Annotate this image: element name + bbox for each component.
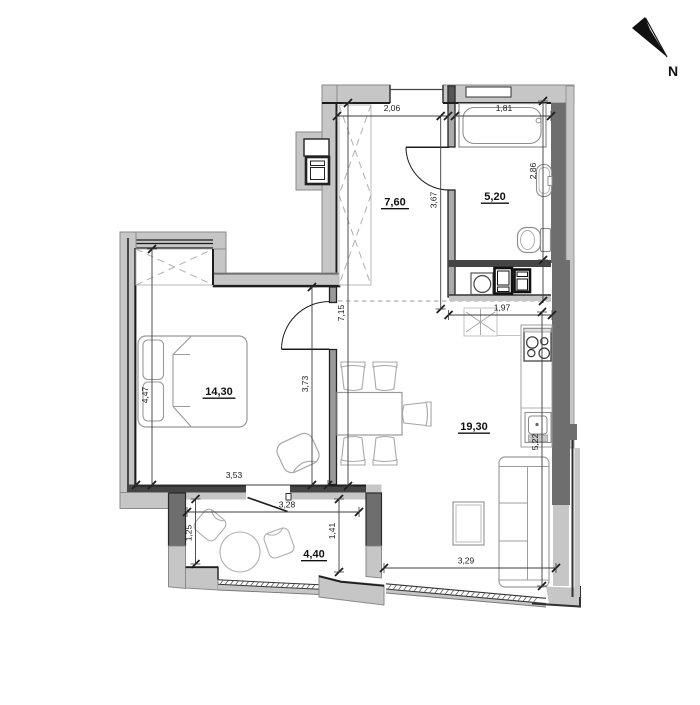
svg-text:3,67: 3,67 bbox=[429, 191, 439, 208]
svg-text:7,60: 7,60 bbox=[384, 197, 405, 209]
svg-text:3,28: 3,28 bbox=[279, 500, 296, 510]
svg-text:14,30: 14,30 bbox=[205, 386, 233, 398]
svg-text:5,22: 5,22 bbox=[530, 433, 540, 450]
svg-text:19,30: 19,30 bbox=[460, 421, 488, 433]
svg-text:7,15: 7,15 bbox=[336, 304, 346, 321]
svg-text:1,97: 1,97 bbox=[494, 303, 511, 313]
svg-text:4,40: 4,40 bbox=[303, 549, 324, 561]
svg-text:5,20: 5,20 bbox=[484, 191, 505, 203]
svg-text:N: N bbox=[668, 63, 678, 79]
svg-text:3,53: 3,53 bbox=[226, 470, 243, 480]
svg-text:1,81: 1,81 bbox=[496, 103, 513, 113]
svg-text:1,41: 1,41 bbox=[327, 522, 337, 539]
svg-text:3,29: 3,29 bbox=[458, 556, 475, 566]
svg-text:3,73: 3,73 bbox=[300, 375, 310, 392]
svg-text:2,06: 2,06 bbox=[384, 103, 401, 113]
svg-text:1,25: 1,25 bbox=[184, 524, 194, 541]
svg-text:4,47: 4,47 bbox=[140, 386, 150, 403]
svg-text:2,86: 2,86 bbox=[528, 162, 538, 179]
